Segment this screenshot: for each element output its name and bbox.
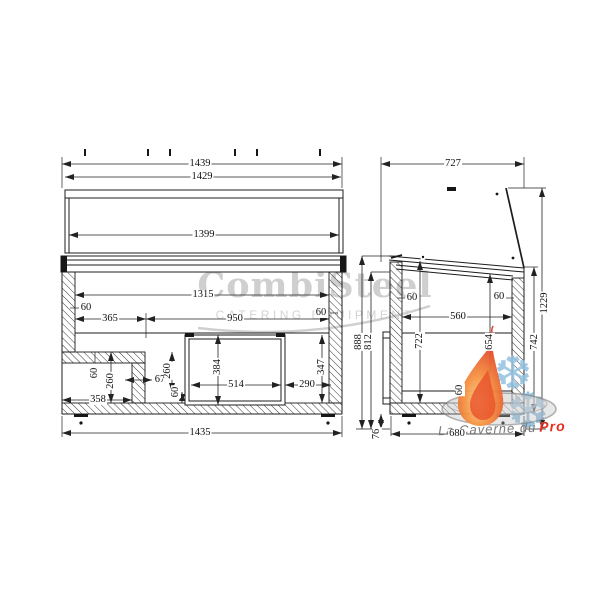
side-canopy	[399, 187, 524, 268]
front-vent-grille	[185, 333, 285, 405]
front-caster-left	[74, 414, 88, 429]
mounting-ticks	[84, 149, 321, 156]
front-top-dimensions	[62, 157, 342, 188]
front-canopy	[65, 190, 343, 253]
side-rear-panel	[383, 332, 390, 404]
drawing-svg	[0, 0, 600, 600]
flame-wisp	[492, 326, 494, 345]
vendor-name-accent: Pro	[536, 418, 566, 435]
front-caster-right	[321, 414, 335, 429]
technical-drawing-page: CombiSteel CATERING EQUIPMENT	[0, 0, 600, 600]
front-view	[61, 149, 346, 437]
front-counter-band	[61, 256, 346, 272]
